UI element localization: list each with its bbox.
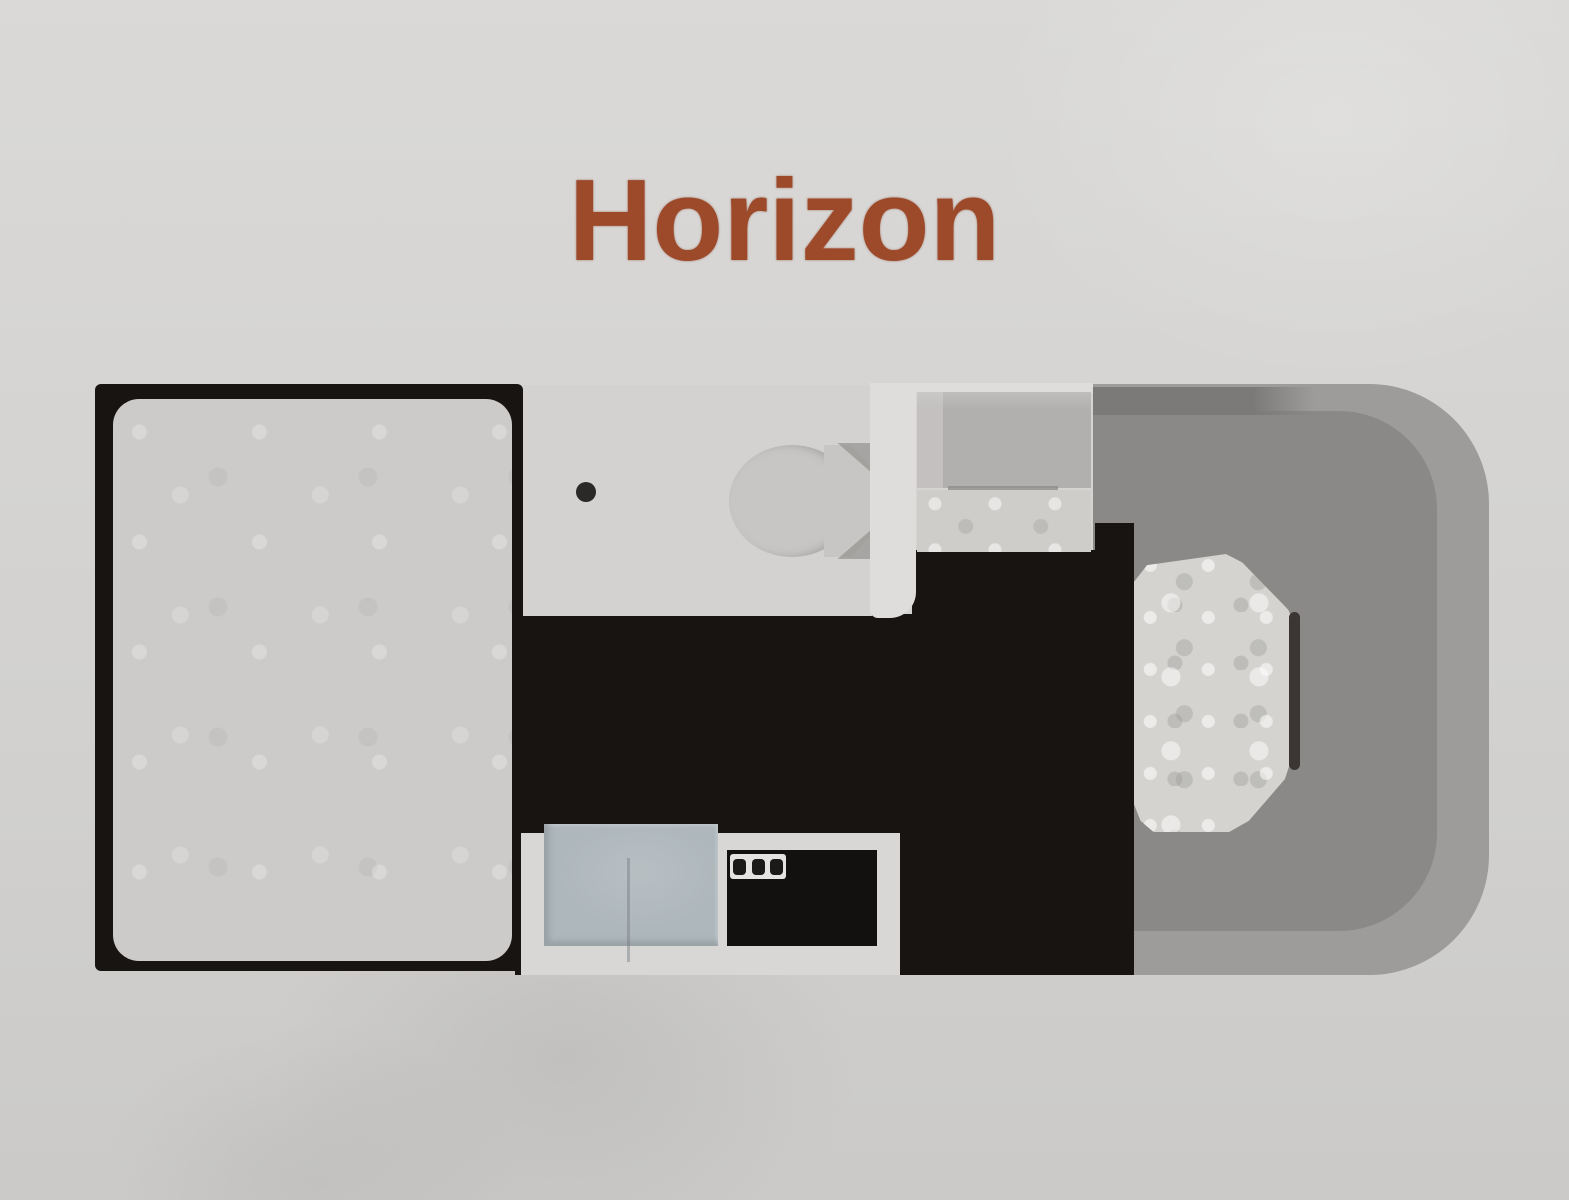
floor-notch [1095,523,1134,552]
seat-shadow [1289,612,1300,770]
shower-drain-icon [576,482,596,502]
cab-dashboard [1093,387,1315,415]
wardrobe-cabinet [917,392,1091,488]
wardrobe-divider-line [948,486,1058,490]
cab-seat [1134,554,1298,832]
wardrobe-shelf [917,490,1091,552]
floor-under-cabinet [912,550,1134,616]
stove-knob-icon [752,859,765,875]
bathroom-wall [870,383,916,618]
sink-divider-line [627,858,630,962]
kitchen-sink [544,824,718,946]
bed [113,399,512,961]
stove-knob-icon [770,859,783,875]
stove-knob-icon [733,859,746,875]
floorplan-diagram [0,0,1569,1200]
wardrobe-highlight [917,392,943,488]
stove-control-panel [730,854,786,879]
